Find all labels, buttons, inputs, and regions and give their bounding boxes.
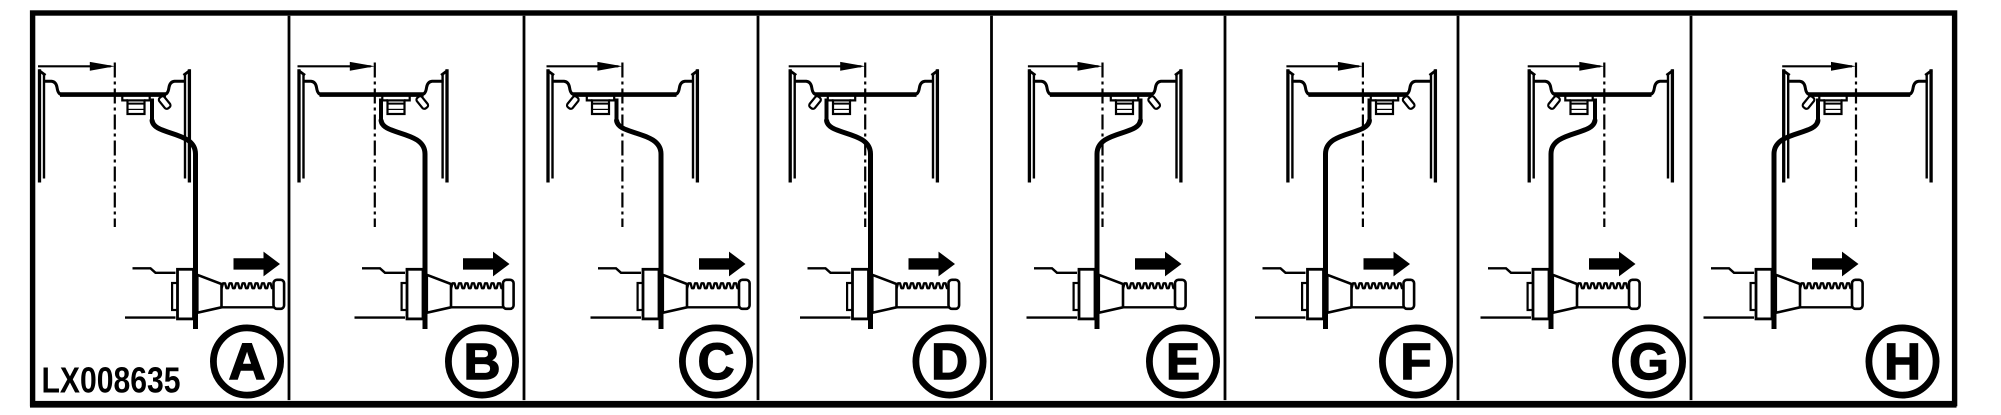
svg-text:LX008635: LX008635 [42,360,181,401]
svg-text:A: A [229,333,266,390]
svg-text:F: F [1400,333,1431,390]
svg-text:E: E [1166,333,1200,390]
svg-text:B: B [464,333,501,390]
svg-text:H: H [1884,333,1921,390]
svg-text:G: G [1629,333,1669,390]
svg-text:D: D [931,333,968,390]
svg-text:C: C [698,333,735,390]
